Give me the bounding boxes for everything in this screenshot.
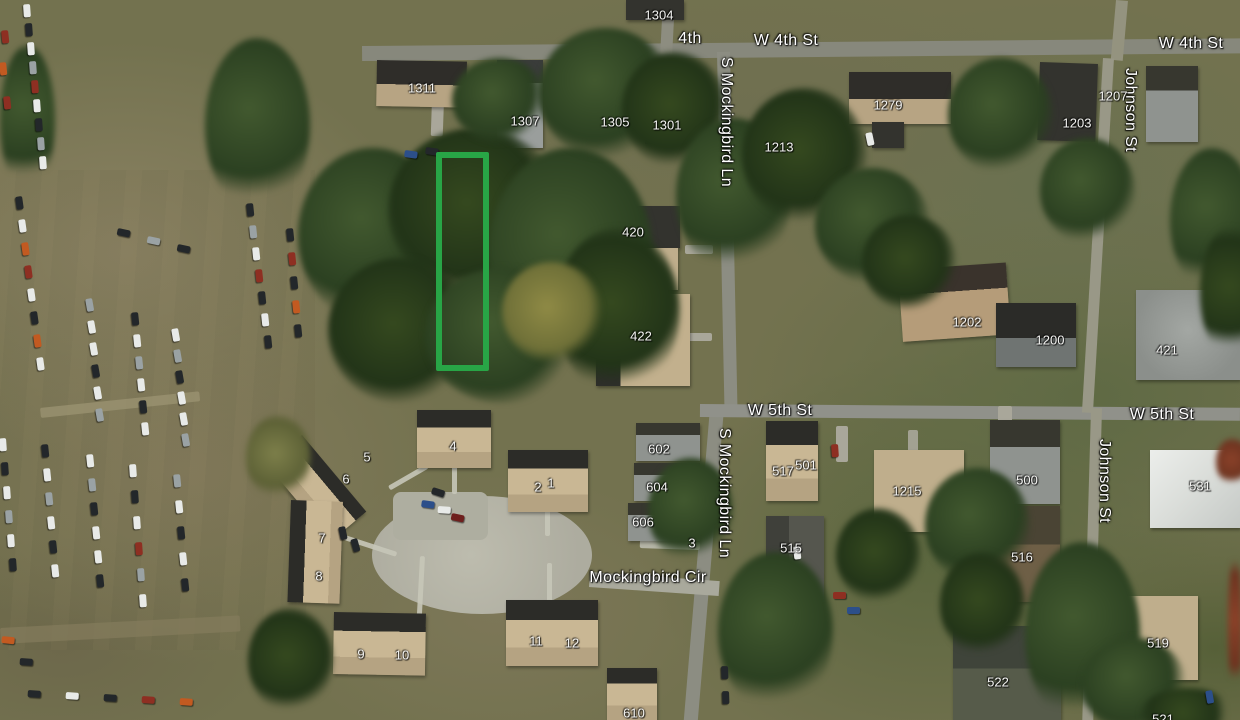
path-walkway-12 bbox=[688, 333, 712, 341]
car bbox=[25, 23, 33, 36]
car bbox=[35, 118, 43, 131]
car bbox=[43, 468, 51, 482]
car bbox=[438, 506, 451, 514]
car bbox=[49, 540, 57, 554]
car bbox=[147, 236, 161, 246]
car bbox=[290, 276, 298, 290]
car bbox=[36, 357, 45, 371]
building-1304 bbox=[626, 0, 684, 20]
car bbox=[45, 492, 53, 506]
car bbox=[255, 269, 263, 283]
car bbox=[133, 516, 141, 529]
building-517-501 bbox=[766, 421, 818, 501]
car bbox=[92, 526, 100, 540]
tree-cluster-8 bbox=[502, 262, 602, 362]
car bbox=[66, 692, 79, 700]
tree-cluster-17 bbox=[1040, 138, 1135, 243]
car bbox=[135, 356, 143, 370]
car bbox=[137, 378, 145, 392]
building-apt-2-1 bbox=[508, 450, 588, 512]
car bbox=[23, 4, 31, 17]
car bbox=[179, 412, 188, 426]
car bbox=[15, 196, 24, 210]
car bbox=[88, 478, 96, 492]
tree-cluster-0 bbox=[205, 38, 310, 213]
car bbox=[181, 433, 190, 447]
car bbox=[831, 444, 839, 457]
car bbox=[175, 370, 184, 384]
car bbox=[294, 324, 302, 338]
car bbox=[175, 500, 183, 514]
car bbox=[5, 510, 13, 523]
car bbox=[9, 558, 17, 571]
car bbox=[33, 334, 42, 348]
building-602 bbox=[636, 423, 700, 461]
car bbox=[129, 464, 137, 477]
shed-1279 bbox=[872, 122, 904, 148]
road-culdesac-apron bbox=[393, 492, 488, 540]
car bbox=[180, 698, 193, 706]
car bbox=[1, 636, 15, 644]
tree-cluster-22 bbox=[718, 552, 833, 712]
car bbox=[0, 62, 7, 76]
car bbox=[87, 320, 96, 334]
car bbox=[27, 288, 36, 302]
car bbox=[142, 696, 155, 704]
car bbox=[37, 137, 45, 150]
path-walkway-5 bbox=[545, 508, 550, 536]
car bbox=[31, 80, 39, 93]
car bbox=[173, 349, 182, 363]
car bbox=[135, 542, 143, 555]
car bbox=[96, 574, 104, 588]
car bbox=[252, 247, 260, 261]
car bbox=[139, 594, 147, 607]
car bbox=[39, 156, 47, 169]
car bbox=[86, 454, 94, 468]
parcel-highlight-rectangle bbox=[436, 152, 489, 371]
tree-cluster-15 bbox=[862, 215, 957, 310]
car bbox=[181, 578, 189, 592]
car bbox=[793, 546, 801, 560]
tree-cluster-27 bbox=[648, 458, 733, 563]
car bbox=[177, 244, 191, 254]
car bbox=[0, 438, 7, 451]
car bbox=[94, 550, 102, 564]
street-label-johnson-st: Johnson St bbox=[1121, 68, 1139, 152]
path-walkway-9 bbox=[908, 430, 918, 452]
car bbox=[41, 444, 49, 458]
car bbox=[292, 300, 300, 314]
car bbox=[27, 42, 35, 55]
car bbox=[18, 219, 27, 233]
car bbox=[249, 225, 257, 239]
tree-cluster-9 bbox=[452, 58, 547, 143]
car bbox=[93, 386, 102, 400]
building-1279 bbox=[849, 72, 951, 124]
tree-cluster-28 bbox=[246, 415, 311, 500]
car bbox=[721, 666, 728, 679]
tree-cluster-29 bbox=[248, 608, 333, 713]
car bbox=[85, 298, 94, 312]
car bbox=[833, 592, 846, 599]
car bbox=[33, 99, 41, 112]
car bbox=[91, 364, 100, 378]
path-walkway-1 bbox=[0, 615, 241, 644]
car bbox=[90, 502, 98, 516]
car bbox=[24, 265, 33, 279]
building-east-of-johnson-4th bbox=[1146, 66, 1198, 142]
road-w-5th-st bbox=[700, 404, 1240, 421]
car bbox=[179, 552, 187, 566]
satellite-map[interactable]: 4thW 4th StW 4th StS Mockingbird LnJohns… bbox=[0, 0, 1240, 720]
car bbox=[264, 335, 272, 349]
tree-cluster-21 bbox=[836, 508, 921, 603]
car bbox=[3, 96, 11, 110]
car bbox=[246, 203, 254, 217]
car bbox=[51, 564, 59, 578]
tree-cluster-31 bbox=[1228, 552, 1240, 702]
car bbox=[139, 400, 147, 414]
car bbox=[173, 474, 181, 488]
path-walkway-4 bbox=[452, 466, 457, 494]
car bbox=[131, 312, 139, 326]
building-610 bbox=[607, 668, 657, 720]
tree-cluster-24 bbox=[940, 552, 1025, 657]
car bbox=[286, 228, 294, 242]
building-apt-7-8 bbox=[287, 500, 343, 604]
building-apt-11-12 bbox=[506, 600, 598, 666]
car bbox=[847, 607, 860, 614]
car bbox=[131, 490, 139, 503]
car bbox=[20, 658, 33, 666]
address-label-5: 5 bbox=[363, 450, 370, 465]
building-apt-9-10 bbox=[333, 612, 426, 676]
car bbox=[3, 486, 11, 499]
building-1200 bbox=[996, 303, 1076, 367]
car bbox=[171, 328, 180, 342]
car bbox=[261, 313, 269, 327]
car bbox=[133, 334, 141, 348]
car bbox=[29, 61, 37, 74]
tree-cluster-1 bbox=[0, 45, 55, 195]
car bbox=[141, 422, 149, 436]
car bbox=[288, 252, 296, 266]
car bbox=[104, 694, 117, 702]
car bbox=[177, 526, 185, 540]
path-walkway-0 bbox=[40, 391, 200, 418]
car bbox=[28, 690, 41, 698]
car bbox=[47, 516, 55, 530]
car bbox=[722, 691, 729, 704]
car bbox=[137, 568, 145, 581]
car bbox=[1, 462, 9, 475]
building-apt-4 bbox=[417, 410, 491, 468]
car bbox=[1, 30, 9, 44]
car bbox=[7, 534, 15, 547]
car bbox=[89, 342, 98, 356]
path-walkway-7 bbox=[547, 563, 552, 603]
car bbox=[21, 242, 30, 256]
tree-cluster-16 bbox=[948, 58, 1053, 173]
car bbox=[117, 228, 131, 238]
car bbox=[258, 291, 266, 305]
car bbox=[30, 311, 39, 325]
